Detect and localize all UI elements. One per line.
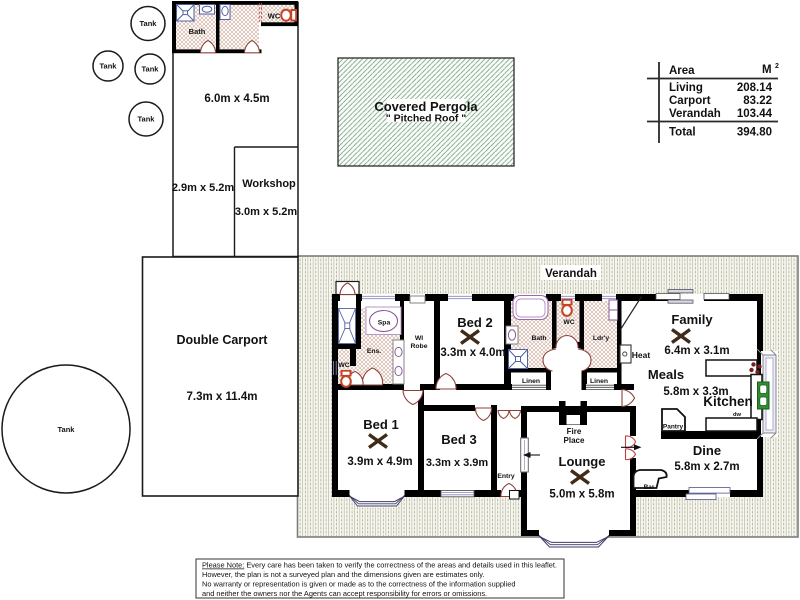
svg-text:2: 2	[775, 63, 779, 70]
svg-text:6.0m x 4.5m: 6.0m x 4.5m	[204, 93, 269, 105]
svg-text:208.14: 208.14	[737, 82, 773, 94]
svg-text:Bed 1: Bed 1	[363, 417, 398, 432]
svg-text:Verandah: Verandah	[545, 268, 597, 280]
svg-text:Verandah: Verandah	[669, 108, 721, 120]
svg-text:" Pitched Roof ": " Pitched Roof "	[386, 113, 467, 125]
svg-text:Ldr'y: Ldr'y	[593, 335, 610, 342]
svg-text:WC: WC	[338, 362, 349, 369]
svg-text:Entry: Entry	[497, 473, 515, 480]
svg-text:Bath: Bath	[189, 27, 206, 36]
svg-text:Bed 2: Bed 2	[457, 315, 492, 330]
svg-text:394.80: 394.80	[737, 127, 772, 139]
svg-text:Lounge: Lounge	[559, 454, 606, 469]
svg-text:Ens.: Ens.	[367, 348, 381, 355]
svg-text:and neither the owners nor the: and neither the owners nor the Agents ca…	[202, 589, 487, 598]
svg-text:3.3m x 4.0m: 3.3m x 4.0m	[440, 347, 505, 359]
svg-text:dw: dw	[733, 412, 742, 418]
svg-text:7.3m x 11.4m: 7.3m x 11.4m	[187, 391, 258, 403]
svg-text:Please Note: Every care has b: Please Note: Every care has been taken t…	[202, 561, 557, 570]
svg-text:Workshop: Workshop	[242, 178, 296, 190]
svg-text:WC: WC	[268, 12, 281, 21]
svg-text:5.0m x 5.8m: 5.0m x 5.8m	[549, 489, 614, 501]
svg-text:Tank: Tank	[140, 19, 158, 28]
svg-text:Linen: Linen	[590, 378, 608, 385]
svg-text:No warranty or representation: No warranty or representation is given o…	[202, 580, 515, 589]
svg-text:103.44: 103.44	[737, 108, 773, 120]
svg-text:Living: Living	[669, 82, 703, 94]
svg-text:Bath: Bath	[531, 335, 546, 342]
svg-text:M: M	[762, 64, 772, 76]
svg-text:2.9m x 5.2m: 2.9m x 5.2m	[172, 182, 235, 194]
svg-text:Pantry: Pantry	[663, 424, 684, 431]
svg-text:Linen: Linen	[522, 378, 540, 385]
svg-text:5.8m x 2.7m: 5.8m x 2.7m	[674, 461, 739, 473]
svg-text:83.22: 83.22	[743, 95, 772, 107]
svg-text:Area: Area	[669, 65, 695, 77]
svg-text:3.3m x 3.9m: 3.3m x 3.9m	[426, 457, 489, 469]
svg-text:Carport: Carport	[669, 95, 711, 107]
svg-text:Tank: Tank	[100, 62, 118, 71]
svg-text:3.9m x 4.9m: 3.9m x 4.9m	[347, 456, 412, 468]
svg-text:Bar: Bar	[644, 484, 655, 491]
svg-text:WC: WC	[563, 319, 574, 326]
svg-text:Tank: Tank	[138, 115, 156, 124]
svg-text:Total: Total	[669, 127, 696, 139]
svg-text:Fire: Fire	[567, 427, 582, 436]
svg-text:Meals: Meals	[648, 367, 684, 382]
svg-text:Tank: Tank	[58, 425, 76, 434]
svg-text:Family: Family	[671, 312, 713, 327]
svg-text:Spa: Spa	[378, 320, 391, 327]
svg-text:Place: Place	[564, 436, 585, 445]
svg-text:Kitchen: Kitchen	[703, 394, 753, 409]
svg-text:Double Carport: Double Carport	[177, 333, 269, 347]
svg-text:Robe: Robe	[411, 343, 428, 350]
svg-text:Dine: Dine	[693, 443, 721, 458]
svg-text:However, the plan is not a sur: However, the plan is not a surveyed plan…	[202, 570, 485, 579]
svg-text:Heat: Heat	[632, 350, 651, 360]
svg-text:Bed 3: Bed 3	[441, 432, 476, 447]
svg-text:3.0m x 5.2m: 3.0m x 5.2m	[235, 206, 298, 218]
svg-text:WI: WI	[415, 335, 423, 342]
svg-text:Tank: Tank	[142, 65, 160, 74]
svg-text:6.4m x 3.1m: 6.4m x 3.1m	[664, 345, 729, 357]
